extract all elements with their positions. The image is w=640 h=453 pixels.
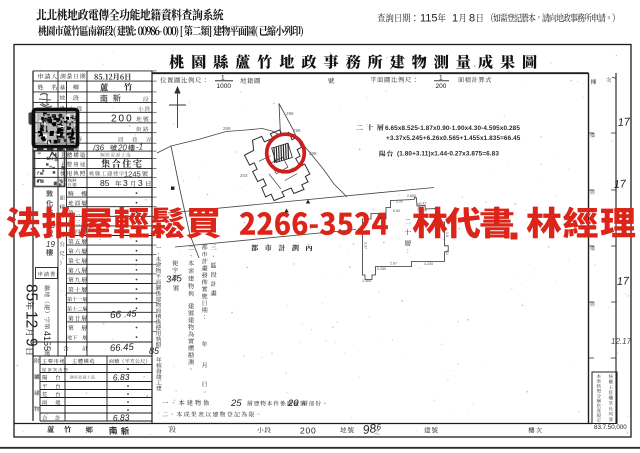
svg-text:25: 25	[230, 398, 242, 409]
svg-text:83.7.50,000: 83.7.50,000	[594, 424, 627, 431]
svg-text:17: 17	[617, 116, 631, 129]
svg-text:66: 66	[110, 309, 122, 321]
svg-text:5.1: 5.1	[445, 250, 449, 255]
svg-text:4.235: 4.235	[424, 262, 433, 266]
svg-text:203: 203	[240, 173, 248, 178]
svg-text:20: 20	[287, 398, 299, 409]
svg-text:200: 200	[436, 83, 447, 90]
svg-text:6.83: 6.83	[113, 372, 130, 383]
svg-text:20: 20	[117, 144, 127, 153]
svg-text:0.285: 0.285	[377, 267, 386, 271]
svg-text:2.87: 2.87	[390, 262, 397, 266]
svg-text:296: 296	[286, 111, 294, 116]
svg-text:200: 200	[111, 113, 134, 124]
svg-text:345: 345	[166, 273, 183, 285]
svg-text:19: 19	[46, 240, 55, 249]
svg-text:2.865: 2.865	[407, 194, 416, 198]
svg-text:1.8: 1.8	[445, 232, 449, 237]
svg-text:85: 85	[100, 178, 110, 188]
svg-text:6.83: 6.83	[113, 412, 130, 423]
svg-text:.45: .45	[124, 308, 138, 319]
svg-text:3: 3	[123, 178, 128, 188]
svg-text:0.90: 0.90	[396, 200, 403, 204]
svg-text:-1: -1	[136, 143, 143, 152]
svg-text:12: 12	[23, 311, 40, 328]
svg-text:115: 115	[420, 13, 438, 25]
svg-text:66.45: 66.45	[110, 342, 135, 354]
svg-text:6.65x8.525-1.87x0.90-1.90x4.30: 6.65x8.525-1.87x0.90-1.90x4.30-4.595x0.2…	[385, 125, 520, 132]
svg-text:298: 298	[309, 151, 317, 156]
svg-text:/36: /36	[92, 143, 105, 153]
svg-text:6.65: 6.65	[393, 209, 400, 213]
svg-text:+3.37x5.245+6.26x0.565+1.455x1: +3.37x5.245+6.26x0.565+1.455x1.835=66.45	[386, 135, 521, 142]
svg-text:85: 85	[23, 284, 40, 301]
svg-text:17: 17	[617, 275, 631, 288]
svg-text:3.37: 3.37	[364, 242, 368, 249]
svg-text:0.47: 0.47	[420, 202, 427, 206]
svg-text:3: 3	[138, 178, 143, 188]
svg-text:1: 1	[452, 13, 458, 25]
svg-text:299: 299	[223, 126, 231, 131]
svg-text:17: 17	[613, 178, 627, 191]
svg-text:85: 85	[149, 346, 160, 356]
svg-text:1000: 1000	[217, 83, 232, 90]
svg-text:1.465: 1.465	[362, 279, 371, 283]
svg-text:4155: 4155	[42, 331, 52, 351]
svg-text:298: 298	[293, 128, 301, 133]
svg-text:12.17: 12.17	[611, 337, 632, 346]
svg-text:98: 98	[362, 421, 377, 437]
svg-text:(1.80+3.11)x1.44-0.27x3.875=6.: (1.80+3.11)x1.44-0.27x3.875=6.83	[397, 151, 499, 158]
svg-text:9: 9	[23, 338, 40, 347]
svg-text:200: 200	[300, 426, 317, 436]
svg-text:8: 8	[469, 13, 475, 25]
